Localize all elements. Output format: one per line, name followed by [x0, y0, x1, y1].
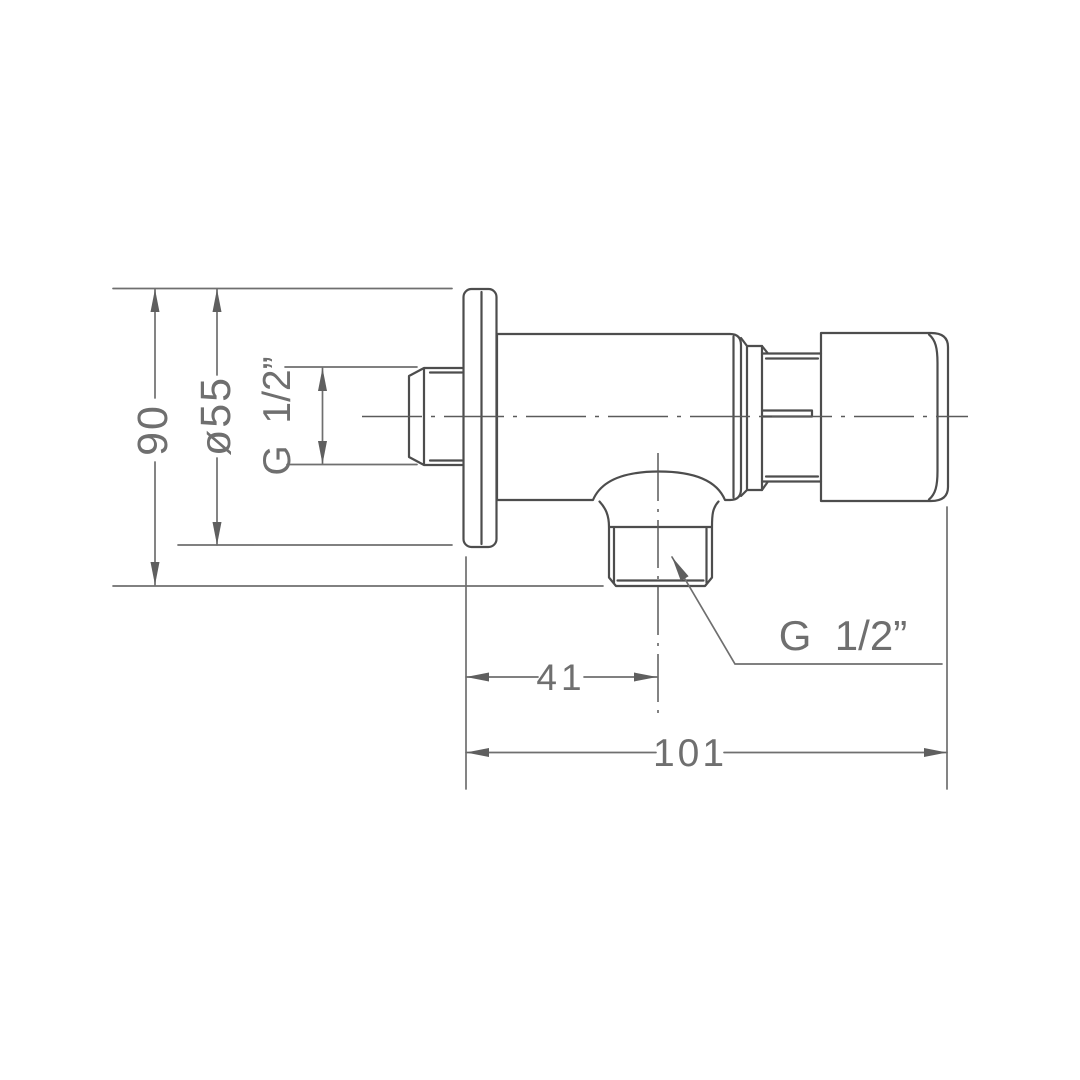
bonnet-stem-lines [762, 411, 812, 417]
dim-flange-diameter-label: ø55 [192, 376, 240, 456]
arrow-length-right [924, 748, 947, 757]
arrow-inlet-bottom [318, 441, 327, 464]
arrow-height-top [151, 289, 160, 312]
outlet-thread-outline [609, 527, 712, 586]
dim-inlet-thread-label: G 1/2” [256, 356, 299, 475]
technical-drawing-canvas: 90 ø55 G 1/2” 41 101 G 1/2” [0, 0, 1080, 1080]
arrow-flange-top [213, 289, 222, 312]
bonnet-neck-outline [762, 346, 821, 490]
arrow-offset-left [466, 673, 489, 682]
flange-outline [464, 289, 497, 547]
outlet-fillets [600, 502, 719, 528]
arrow-height-bottom [151, 562, 160, 585]
dim-overall-length-label: 101 [653, 732, 727, 775]
dim-outlet-offset-label: 41 [536, 657, 585, 698]
arrow-offset-right [634, 673, 657, 682]
dim-outlet-thread-label: G 1/2” [779, 612, 907, 659]
dim-overall-height-label: 90 [129, 404, 177, 456]
outlet-thread-detail [614, 529, 707, 583]
arrow-flange-bottom [213, 522, 222, 545]
arrow-length-left [466, 748, 489, 757]
arrow-outlet-leader [672, 557, 689, 581]
arrow-inlet-top [318, 368, 327, 391]
valve-dimension-drawing: 90 ø55 G 1/2” 41 101 G 1/2” [0, 0, 1080, 1080]
